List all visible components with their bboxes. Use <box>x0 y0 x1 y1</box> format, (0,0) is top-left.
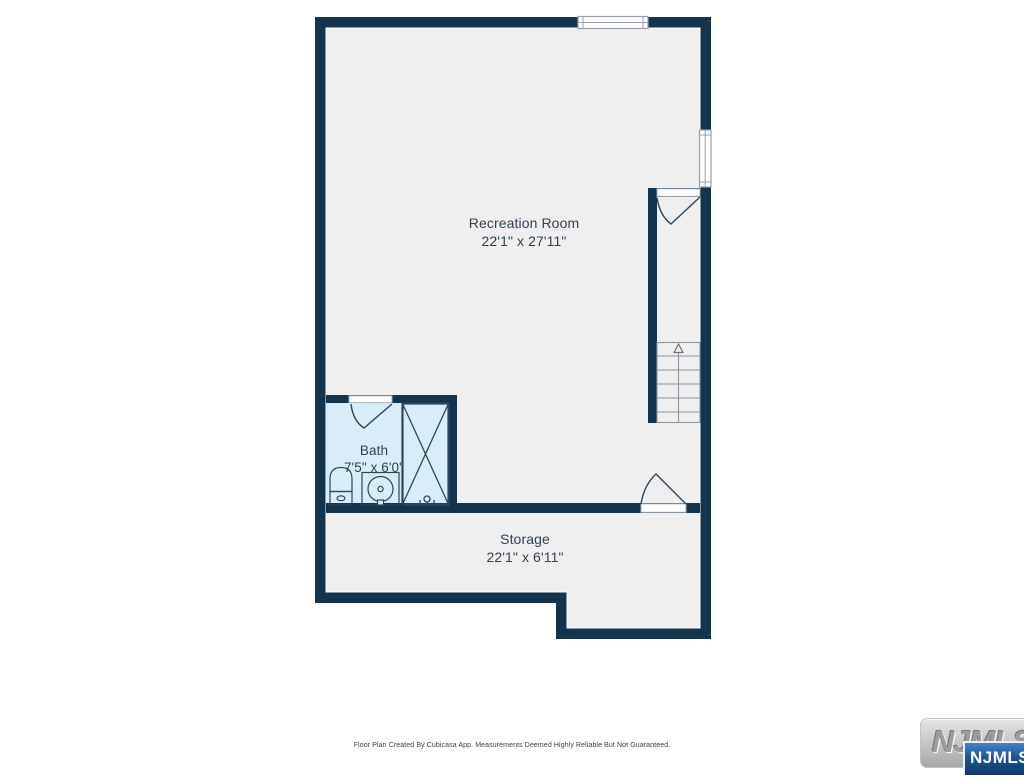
floor-plan-drawing <box>0 0 1024 768</box>
room-label-bath: Bath 7'5" x 6'0" <box>344 442 404 476</box>
floor-plan-canvas: Recreation Room 22'1" x 27'11" Bath 7'5"… <box>0 0 1024 768</box>
room-label-recreation-room: Recreation Room 22'1" x 27'11" <box>469 214 579 250</box>
door-bar-storage <box>641 504 686 513</box>
window-top-icon <box>578 17 648 29</box>
room-dimensions: 22'1" x 6'11" <box>486 548 563 566</box>
wall-stair-left <box>648 188 657 423</box>
room-name: Storage <box>486 530 563 548</box>
room-name: Recreation Room <box>469 214 579 232</box>
room-label-storage: Storage 22'1" x 6'11" <box>486 530 563 566</box>
room-dimensions: 22'1" x 27'11" <box>469 232 579 250</box>
door-bar-stairwell <box>657 189 700 197</box>
room-name: Bath <box>344 442 404 459</box>
door-bar-bath <box>349 396 392 403</box>
window-right-icon <box>700 130 712 187</box>
njmls-badge: NJMLS <box>963 741 1024 775</box>
njmls-badge-text: NJMLS <box>965 743 1024 773</box>
wall-bath-right <box>449 395 457 503</box>
room-dimensions: 7'5" x 6'0" <box>344 459 404 476</box>
disclaimer-text: Floor Plan Created By Cubicasa App. Meas… <box>0 742 1024 749</box>
